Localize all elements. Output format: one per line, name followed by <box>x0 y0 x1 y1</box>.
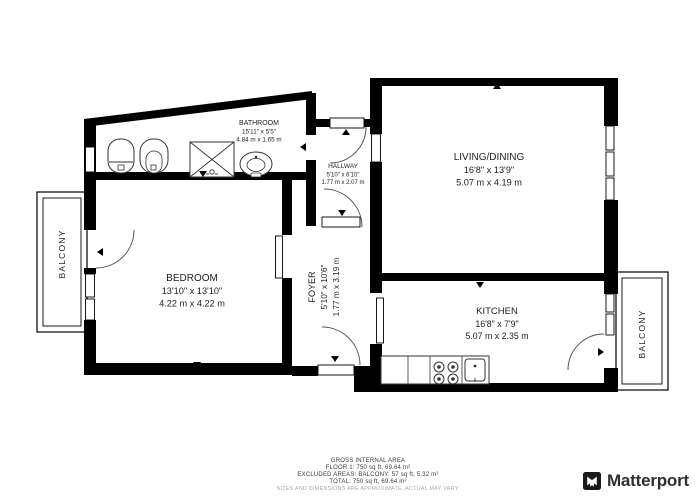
wall-segment <box>84 180 96 230</box>
shower-faucet-icon <box>210 170 214 174</box>
door-threshold <box>322 217 360 227</box>
window <box>86 274 95 297</box>
area-summary: GROSS INTERNAL AREA FLOOR 1: 750 sq ft, … <box>277 458 460 493</box>
wall-segment <box>84 363 292 375</box>
door-arc <box>322 327 360 365</box>
wall-segment <box>370 281 382 293</box>
wall-segment <box>306 93 316 135</box>
foyer-dim-metric: 1.77 m x 3.19 m <box>332 257 341 316</box>
tick-marker <box>300 143 306 151</box>
wall-segment <box>604 200 618 274</box>
hallway-dim-imperial: 5'10" x 6'10" <box>327 173 360 179</box>
matterport-logo: Matterport <box>583 471 689 491</box>
wall-segment <box>370 78 618 86</box>
sink-tap-icon <box>255 156 258 159</box>
tick-marker <box>97 248 103 256</box>
disclaimer-text: SIZES AND DIMENSIONS ARE APPROXIMATE, AC… <box>277 486 460 493</box>
door-threshold <box>318 365 354 375</box>
tick-marker <box>342 129 350 135</box>
sink-icon <box>247 159 265 172</box>
living-dim-metric: 5.07 m x 4.19 m <box>456 178 522 188</box>
wall-segment <box>306 119 330 127</box>
window <box>606 314 614 335</box>
kitchen-label: KITCHEN <box>476 306 518 317</box>
kitchen-dim-imperial: 16'8" x 7'9" <box>475 319 518 329</box>
floorplan-drawing: BATHROOM 15'11" x 5'5" 4.84 m x 1.65 m H… <box>0 0 700 500</box>
foyer-label: FOYER <box>307 271 317 303</box>
window <box>606 294 614 312</box>
bedroom-label: BEDROOM <box>166 273 218 284</box>
total-area-line: TOTAL: 750 sq ft, 69.64 m² <box>277 479 460 486</box>
stove-burner-icon <box>437 365 441 369</box>
wall-opening <box>372 134 381 162</box>
tick-marker <box>598 348 604 356</box>
sink-icon <box>251 173 261 177</box>
window <box>86 299 95 320</box>
window <box>606 178 614 200</box>
bathroom-label: BATHROOM <box>239 120 279 127</box>
bedroom-dim-imperial: 13'10" x 13'10" <box>162 286 223 296</box>
wall-segment <box>282 180 292 235</box>
gross-area-title: GROSS INTERNAL AREA <box>277 458 460 465</box>
stove-burner-icon <box>437 377 441 381</box>
wall-segment <box>282 278 292 375</box>
stove-burner-icon <box>451 377 455 381</box>
hallway-label: HALLWAY <box>328 163 359 170</box>
door-leaf <box>377 298 384 343</box>
tick-marker <box>338 210 346 216</box>
kitchen-dim-metric: 5.07 m x 2.35 m <box>465 331 528 341</box>
living-dim-imperial: 16'8" x 13'9" <box>464 165 514 175</box>
wall-segment <box>604 78 618 126</box>
bathroom-fixtures <box>108 139 272 177</box>
wall-segment <box>292 366 318 376</box>
living-label: LIVING/DINING <box>454 152 525 163</box>
wall-segment <box>84 268 96 274</box>
window <box>606 152 614 176</box>
wall-segment <box>370 162 382 274</box>
tick-marker <box>476 282 484 288</box>
toilet-icon <box>118 165 124 170</box>
tick-marker <box>331 356 339 362</box>
excluded-area-line: EXCLUDED AREAS: BALCONY: 57 sq ft, 5.32 … <box>277 472 460 479</box>
window <box>606 126 614 150</box>
kitchen-sink-icon <box>465 359 485 381</box>
kitchen-fixtures <box>381 356 489 384</box>
kitchen-sink-icon <box>474 365 477 368</box>
bathroom-dim-imperial: 15'11" x 5'5" <box>242 129 276 136</box>
window <box>86 147 95 172</box>
hallway-dim-metric: 1.77 m x 2.07 m <box>321 180 364 186</box>
floor-area-line: FLOOR 1: 750 sq ft, 69.64 m² <box>277 465 460 472</box>
matterport-logo-icon <box>583 472 601 490</box>
wall-segment <box>354 366 382 392</box>
wall-segment <box>370 86 382 134</box>
floorplan-page: BATHROOM 15'11" x 5'5" 4.84 m x 1.65 m H… <box>0 0 700 500</box>
balcony-left-label: BALCONY <box>57 229 67 278</box>
wall-segment <box>604 273 618 294</box>
wall-segment <box>370 273 604 281</box>
bidet-icon <box>151 165 156 170</box>
foyer-dim-imperial: 5'10" x 10'6" <box>320 264 329 309</box>
stove-burner-icon <box>451 365 455 369</box>
wall-segment <box>306 160 316 226</box>
matterport-logo-text: Matterport <box>607 471 689 491</box>
bathroom-dim-metric: 4.84 m x 1.65 m <box>236 137 281 144</box>
bedroom-dim-metric: 4.22 m x 4.22 m <box>159 299 225 309</box>
door-threshold <box>330 118 364 128</box>
balcony-right-label: BALCONY <box>637 309 647 358</box>
door-leaf <box>276 236 283 278</box>
